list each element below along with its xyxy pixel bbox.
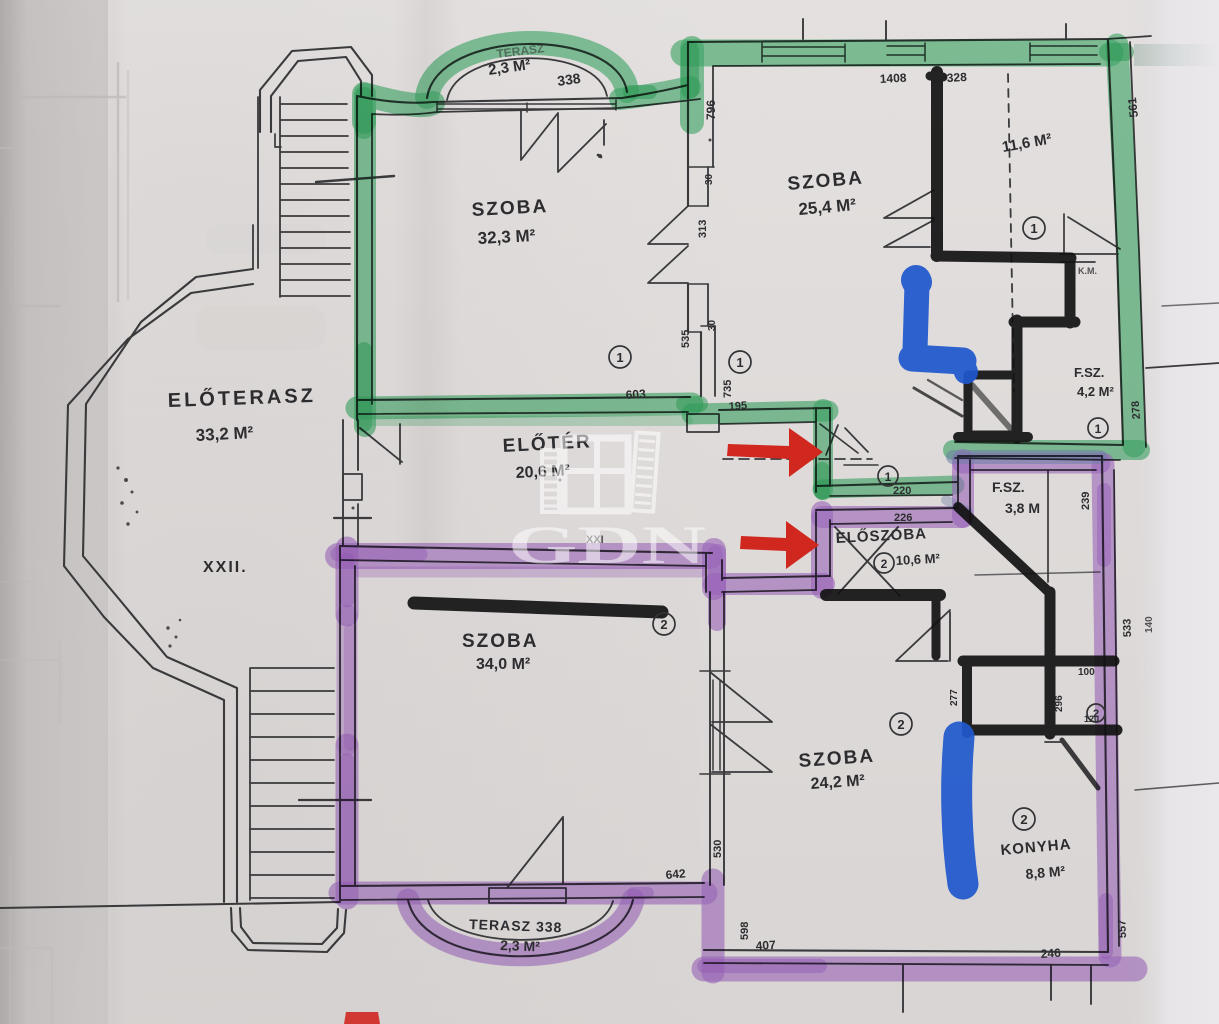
svg-text:3,8 M: 3,8 M	[1005, 500, 1040, 516]
svg-text:1: 1	[1030, 221, 1037, 236]
svg-text:30: 30	[707, 319, 718, 331]
svg-text:32,3 M²: 32,3 M²	[477, 226, 536, 248]
svg-text:195: 195	[728, 400, 747, 413]
svg-text:535: 535	[680, 330, 692, 348]
svg-text:1: 1	[885, 470, 892, 484]
svg-text:239: 239	[1080, 492, 1092, 510]
svg-text:2: 2	[1020, 812, 1027, 827]
svg-text:4,2 M²: 4,2 M²	[1077, 384, 1115, 399]
svg-text:407: 407	[755, 938, 776, 953]
svg-text:313: 313	[697, 220, 709, 238]
svg-text:1: 1	[1095, 422, 1102, 436]
svg-text:10,6 M²: 10,6 M²	[895, 551, 940, 568]
svg-text:533: 533	[1121, 619, 1134, 638]
svg-text:296: 296	[1054, 695, 1065, 712]
svg-text:2: 2	[660, 617, 667, 632]
svg-text:735: 735	[722, 380, 734, 398]
svg-text:277: 277	[949, 689, 960, 706]
svg-text:338: 338	[556, 70, 582, 89]
svg-text:ELŐTÉR: ELŐTÉR	[502, 430, 592, 457]
svg-text:557: 557	[1116, 920, 1129, 939]
svg-text:GDN: GDN	[508, 515, 706, 575]
svg-text:2: 2	[897, 717, 904, 732]
svg-text:2: 2	[881, 557, 888, 571]
svg-text:SZOBA: SZOBA	[471, 196, 548, 221]
svg-text:220: 220	[893, 485, 911, 497]
svg-text:34,0 M²: 34,0 M²	[476, 656, 530, 673]
svg-text:XXII.: XXII.	[203, 559, 248, 576]
svg-text:278: 278	[1130, 400, 1143, 419]
svg-text:1: 1	[736, 355, 743, 370]
svg-text:TERASZ 338: TERASZ 338	[469, 916, 563, 935]
svg-text:1: 1	[616, 350, 623, 365]
svg-text:140: 140	[1144, 616, 1155, 633]
svg-text:K.M.: K.M.	[1078, 266, 1097, 276]
svg-text:246: 246	[1040, 946, 1061, 961]
svg-text:530: 530	[712, 840, 724, 858]
svg-text:642: 642	[665, 866, 686, 882]
svg-text:603: 603	[625, 387, 646, 402]
svg-text:F.SZ.: F.SZ.	[1074, 365, 1104, 380]
svg-text:30: 30	[704, 173, 715, 185]
svg-text:2,3 M²: 2,3 M²	[500, 937, 541, 954]
svg-text:1408: 1408	[879, 71, 907, 86]
svg-text:796: 796	[704, 100, 718, 120]
svg-text:33,2 M²: 33,2 M²	[195, 423, 254, 445]
svg-text:SZOBA: SZOBA	[462, 631, 539, 652]
svg-text:226: 226	[894, 512, 912, 524]
svg-text:F.SZ.: F.SZ.	[992, 479, 1025, 495]
svg-text:598: 598	[739, 922, 751, 940]
svg-text:2: 2	[1093, 708, 1099, 720]
svg-text:100: 100	[1078, 667, 1095, 678]
svg-text:561: 561	[1125, 96, 1141, 118]
svg-text:328: 328	[946, 70, 967, 85]
